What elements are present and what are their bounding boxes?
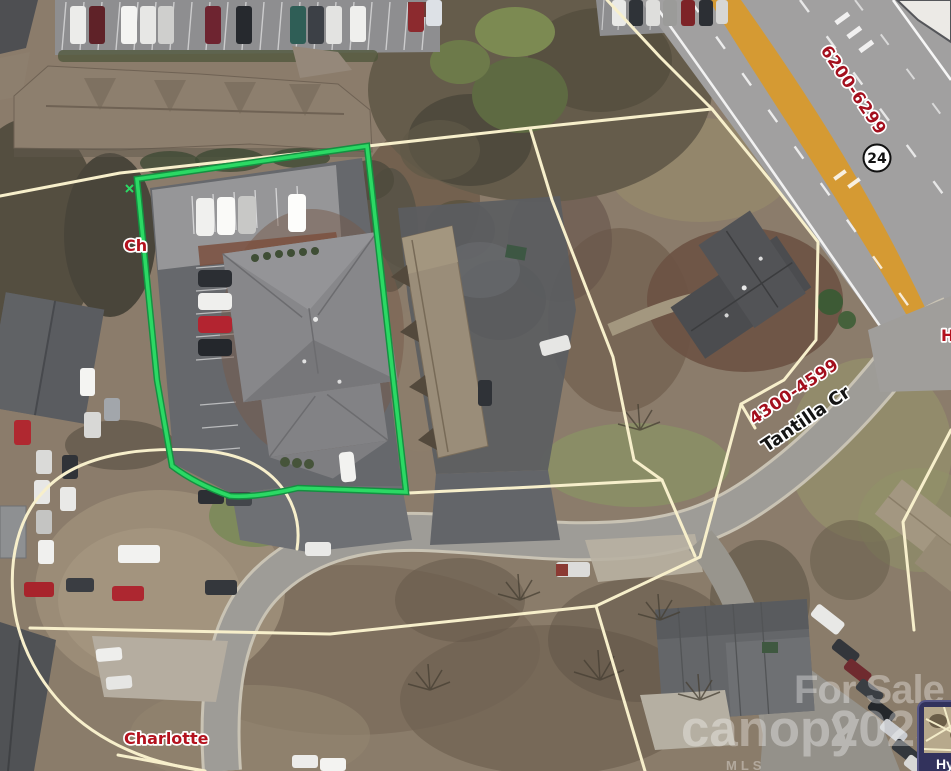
highway-24-shield: 24: [864, 145, 891, 172]
inset-thumbnail-image: [924, 707, 951, 753]
label-edge-clipped: H: [941, 326, 951, 345]
label-city: Charlotte: [124, 729, 209, 748]
inset-thumbnail[interactable]: [924, 707, 951, 753]
aerial-imagery: Ch Charlotte 4300-4599 Tantilla Cr 6200-…: [0, 0, 951, 771]
inset-map-card[interactable]: Hy: [917, 700, 951, 771]
inset-label: Hy: [936, 756, 951, 771]
aerial-map-stage[interactable]: Ch Charlotte 4300-4599 Tantilla Cr 6200-…: [0, 0, 951, 771]
label-city-clipped: Ch: [124, 236, 147, 255]
shield-number: 24: [867, 151, 887, 167]
